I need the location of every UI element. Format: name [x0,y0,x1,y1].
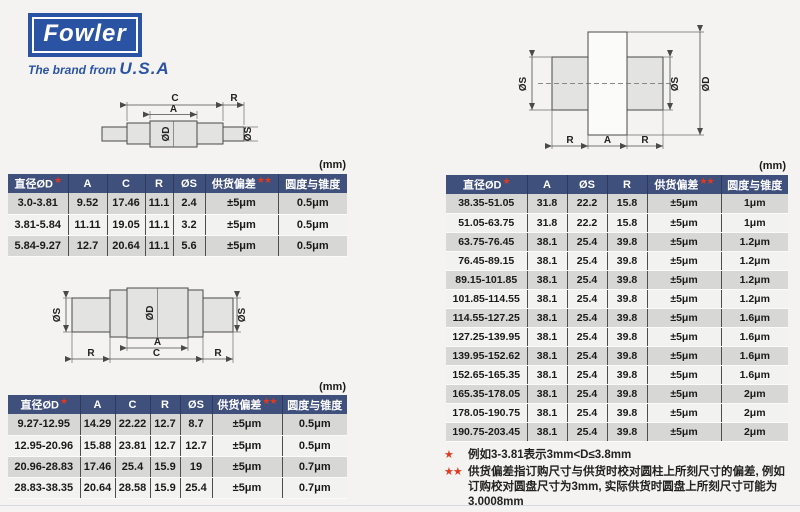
table-cell: 0.5μm [282,414,347,435]
table-cell: 0.5μm [278,214,347,235]
table-cell: 63.75-76.45 [446,232,527,251]
table-cell: 38.1 [527,365,567,384]
table-cell: ±5μm [205,214,278,235]
table-row: 127.25-139.9538.125.439.8±5μm1.6μm [446,327,788,346]
table-cell: ±5μm [647,403,721,422]
table-cell: 22.2 [567,213,607,232]
table-cell: 17.46 [107,193,145,214]
footnotes: ★ 例如3-3.81表示3mm<D≤3.8mm ★★ 供货偏差指订购尺寸与供货时… [444,448,794,512]
table-cell: ±5μm [647,251,721,270]
table-cell: 25.4 [567,251,607,270]
table-cell: ±5μm [647,308,721,327]
table-cell: 1.2μm [721,251,788,270]
table-cell: 38.1 [527,327,567,346]
spec-table-large-diameters: 直径ØD★AØSR供货偏差★★圆度与锥度38.35-51.0531.822.21… [446,175,788,442]
table-cell: ±5μm [205,193,278,214]
table-cell: ±5μm [647,213,721,232]
table-cell: ±5μm [647,422,721,441]
column-header: 供货偏差★★ [212,395,282,414]
column-header: ØS [567,175,607,194]
fowler-logo-text: Fowler [43,20,126,48]
table-cell: 190.75-203.45 [446,422,527,441]
table-cell: 39.8 [607,270,647,289]
dim-label-r-left: R [87,348,95,359]
column-header: R [150,395,180,414]
table-cell: 0.5μm [278,193,347,214]
table-cell: 8.7 [180,414,212,435]
table-cell: 20.96-28.83 [8,456,80,477]
table-row: 89.15-101.8538.125.439.8±5μm1.2μm [446,270,788,289]
table-cell: 1μm [721,194,788,213]
table-cell: 39.8 [607,289,647,308]
table-row: 20.96-28.8317.4625.415.919±5μm0.7μm [8,456,347,477]
table-cell: 12.7 [180,435,212,456]
dim-label-c: C [153,348,160,359]
table-cell: 38.1 [527,289,567,308]
table-cell: 25.4 [567,327,607,346]
table-cell: ±5μm [647,346,721,365]
dim-label-os: ØS [243,126,254,141]
table-row: 3.0-3.819.5217.4611.12.4±5μm0.5μm [8,193,347,214]
table-cell: 38.1 [527,232,567,251]
column-header: 圆度与锥度 [282,395,347,414]
column-header: C [115,395,150,414]
table-cell: 101.85-114.55 [446,289,527,308]
table-cell: 25.4 [567,365,607,384]
table-cell: 1.2μm [721,289,788,308]
table-row: 51.05-63.7531.822.215.8±5μm1μm [446,213,788,232]
table-cell: 38.1 [527,346,567,365]
tagline-country: U.S.A [119,59,169,78]
star-footnote-marker: ★ [54,175,61,185]
dim-label-a: A [604,135,611,146]
star-footnote-marker: ★★ [262,396,276,406]
column-header: R [607,175,647,194]
fowler-logo-frame: Fowler [32,17,138,53]
table-cell: 11.1 [145,193,173,214]
dim-label-c: C [171,93,178,104]
table-cell: ±5μm [647,232,721,251]
table-cell: 0.5μm [278,235,347,256]
header-row: 直径ØD★AØSR供货偏差★★圆度与锥度 [446,175,788,194]
table-cell: 38.1 [527,384,567,403]
dim-label-os-right: ØS [670,76,681,91]
table-row: 12.95-20.9615.8823.8112.712.7±5μm0.5μm [8,435,347,456]
diagram-disc: ØS ØS ØD R A R [520,4,792,162]
table-cell: 38.1 [527,403,567,422]
table-cell: 1.6μm [721,308,788,327]
table-cell: 12.7 [150,414,180,435]
table-cell: 38.35-51.05 [446,194,527,213]
table-row: 190.75-203.4538.125.439.8±5μm2μm [446,422,788,441]
table-cell: 1.6μm [721,327,788,346]
footnote-2-text: 供货偏差指订购尺寸与供货时校对圆柱上所刻尺寸的偏差, 例如订购校对圆盘尺寸为3m… [468,465,794,510]
table-cell: 25.4 [567,403,607,422]
column-header: 直径ØD★ [446,175,527,194]
dim-label-od: ØD [145,306,156,321]
units-label-table-2: (mm) [240,381,346,393]
tagline-prefix: The brand from [28,63,116,77]
table-cell: ±5μm [205,235,278,256]
dim-label-os-left: ØS [52,307,63,322]
dim-label-od: ØD [701,77,712,92]
column-header: A [527,175,567,194]
units-label-table-1: (mm) [240,159,346,171]
table-cell: 114.55-127.25 [446,308,527,327]
dim-label-os-left: ØS [518,76,529,91]
spec-table-medium-diameters: 直径ØD★ACRØS供货偏差★★圆度与锥度9.27-12.9514.2922.2… [8,395,347,499]
table-cell: 25.4 [115,456,150,477]
column-header: ØS [173,174,205,193]
table-cell: 9.52 [68,193,107,214]
table-cell: 127.25-139.95 [446,327,527,346]
column-header: 供货偏差★★ [647,175,721,194]
table-cell: 39.8 [607,327,647,346]
table-cell: 3.81-5.84 [8,214,68,235]
table-row: 38.35-51.0531.822.215.8±5μm1μm [446,194,788,213]
table-cell: ±5μm [647,194,721,213]
table-cell: ±5μm [647,289,721,308]
footnote-1: ★ 例如3-3.81表示3mm<D≤3.8mm [444,448,794,463]
table-cell: 38.1 [527,251,567,270]
column-header: C [107,174,145,193]
table-cell: 39.8 [607,384,647,403]
table-cell: 1.2μm [721,232,788,251]
units-label-table-3: (mm) [680,160,786,172]
dim-label-r-right: R [214,348,222,359]
dim-label-os-right: ØS [237,307,248,322]
table-cell: 25.4 [180,477,212,498]
star-footnote-marker: ★★ [699,176,713,186]
dim-label-r-right: R [641,135,649,146]
table-cell: 3.2 [173,214,205,235]
table-cell: 2.4 [173,193,205,214]
footnote-2: ★★ 供货偏差指订购尺寸与供货时校对圆柱上所刻尺寸的偏差, 例如订购校对圆盘尺寸… [444,465,794,510]
table-cell: ±5μm [212,414,282,435]
table-cell: 14.29 [80,414,115,435]
dim-label-a: A [170,104,177,115]
table-cell: 17.46 [80,456,115,477]
table-cell: 1μm [721,213,788,232]
table-cell: 25.4 [567,232,607,251]
table-row: 3.81-5.8411.1119.0511.13.2±5μm0.5μm [8,214,347,235]
table-cell: 11.1 [145,214,173,235]
table-cell: 178.05-190.75 [446,403,527,422]
table-row: 152.65-165.3538.125.439.8±5μm1.6μm [446,365,788,384]
table-cell: 3.0-3.81 [8,193,68,214]
table-cell: 12.7 [150,435,180,456]
footnote-1-star: ★ [444,448,468,463]
table-cell: 25.4 [567,270,607,289]
table-cell: 11.11 [68,214,107,235]
table-row: 178.05-190.7538.125.439.8±5μm2μm [446,403,788,422]
table-row: 5.84-9.2712.720.6411.15.6±5μm0.5μm [8,235,347,256]
table-cell: 22.22 [115,414,150,435]
table-cell: 31.8 [527,194,567,213]
column-header: 圆度与锥度 [721,175,788,194]
table-cell: 25.4 [567,422,607,441]
table-cell: 28.58 [115,477,150,498]
table-cell: ±5μm [647,270,721,289]
star-footnote-marker: ★ [502,176,509,186]
table-row: 139.95-152.6238.125.439.8±5μm1.6μm [446,346,788,365]
table-cell: 51.05-63.75 [446,213,527,232]
bottom-divider [0,505,800,506]
table-cell: 0.7μm [282,477,347,498]
table-cell: 19 [180,456,212,477]
table-cell: 39.8 [607,422,647,441]
table-cell: 31.8 [527,213,567,232]
column-header: 供货偏差★★ [205,174,278,193]
dim-label-r-left: R [566,135,574,146]
dim-label-od: ØD [161,127,172,142]
table-cell: ±5μm [212,477,282,498]
table-cell: 38.1 [527,422,567,441]
table-cell: 20.64 [80,477,115,498]
column-header: R [145,174,173,193]
table-cell: ±5μm [647,384,721,403]
table-cell: 38.1 [527,308,567,327]
table-cell: 39.8 [607,365,647,384]
diagram-small-shaft: C R A ØD ØS [85,85,280,163]
star-footnote-marker: ★★ [257,175,271,185]
table-cell: 2μm [721,422,788,441]
table-cell: 39.8 [607,251,647,270]
table-cell: 165.35-178.05 [446,384,527,403]
table-cell: ±5μm [212,435,282,456]
table-cell: 15.88 [80,435,115,456]
column-header: 直径ØD★ [8,174,68,193]
table-cell: 12.7 [68,235,107,256]
table-cell: 25.4 [567,384,607,403]
table-cell: ±5μm [212,456,282,477]
table-cell: 25.4 [567,346,607,365]
table-row: 9.27-12.9514.2922.2212.78.7±5μm0.5μm [8,414,347,435]
table-cell: 2μm [721,403,788,422]
table-cell: 89.15-101.85 [446,270,527,289]
catalog-page: Fowler The brand from U.S.A C R A ØD [0,0,800,512]
spec-table-small-diameters: 直径ØD★ACRØS供货偏差★★圆度与锥度3.0-3.819.5217.4611… [8,174,347,257]
header-row: 直径ØD★ACRØS供货偏差★★圆度与锥度 [8,395,347,414]
brand-tagline: The brand from U.S.A [28,59,170,79]
table-cell: ±5μm [647,327,721,346]
dim-label-a: A [154,337,161,348]
star-footnote-marker: ★ [60,396,67,406]
table-cell: 5.6 [173,235,205,256]
table-cell: 9.27-12.95 [8,414,80,435]
table-cell: 15.8 [607,194,647,213]
fowler-logo: Fowler [28,13,142,57]
table-cell: 139.95-152.62 [446,346,527,365]
table-cell: 25.4 [567,289,607,308]
diagram-large-shaft: ØD ØS ØS A R C R [53,280,265,380]
table-row: 63.75-76.4538.125.439.8±5μm1.2μm [446,232,788,251]
table-cell: 1.6μm [721,365,788,384]
table-cell: 22.2 [567,194,607,213]
table-row: 101.85-114.5538.125.439.8±5μm1.2μm [446,289,788,308]
table-cell: 15.9 [150,477,180,498]
table-cell: 2μm [721,384,788,403]
table-cell: 39.8 [607,232,647,251]
column-header: A [68,174,107,193]
table-cell: 76.45-89.15 [446,251,527,270]
table-cell: 38.1 [527,270,567,289]
table-cell: 0.5μm [282,435,347,456]
table-cell: 11.1 [145,235,173,256]
table-cell: 25.4 [567,308,607,327]
table-cell: 39.8 [607,403,647,422]
table-cell: 1.6μm [721,346,788,365]
table-cell: 0.7μm [282,456,347,477]
column-header: 直径ØD★ [8,395,80,414]
footnote-2-star: ★★ [444,465,468,510]
table-cell: 152.65-165.35 [446,365,527,384]
table-cell: 5.84-9.27 [8,235,68,256]
table-cell: 39.8 [607,308,647,327]
table-cell: 19.05 [107,214,145,235]
dim-label-r: R [230,93,238,104]
table-cell: 15.9 [150,456,180,477]
column-header: A [80,395,115,414]
footnote-1-text: 例如3-3.81表示3mm<D≤3.8mm [468,448,631,463]
table-cell: 39.8 [607,346,647,365]
table-row: 76.45-89.1538.125.439.8±5μm1.2μm [446,251,788,270]
table-cell: ±5μm [647,365,721,384]
column-header: ØS [180,395,212,414]
header-row: 直径ØD★ACRØS供货偏差★★圆度与锥度 [8,174,347,193]
table-cell: 28.83-38.35 [8,477,80,498]
table-cell: 12.95-20.96 [8,435,80,456]
table-cell: 1.2μm [721,270,788,289]
table-row: 165.35-178.0538.125.439.8±5μm2μm [446,384,788,403]
table-row: 28.83-38.3520.6428.5815.925.4±5μm0.7μm [8,477,347,498]
table-cell: 15.8 [607,213,647,232]
column-header: 圆度与锥度 [278,174,347,193]
table-cell: 20.64 [107,235,145,256]
table-row: 114.55-127.2538.125.439.8±5μm1.6μm [446,308,788,327]
table-cell: 23.81 [115,435,150,456]
